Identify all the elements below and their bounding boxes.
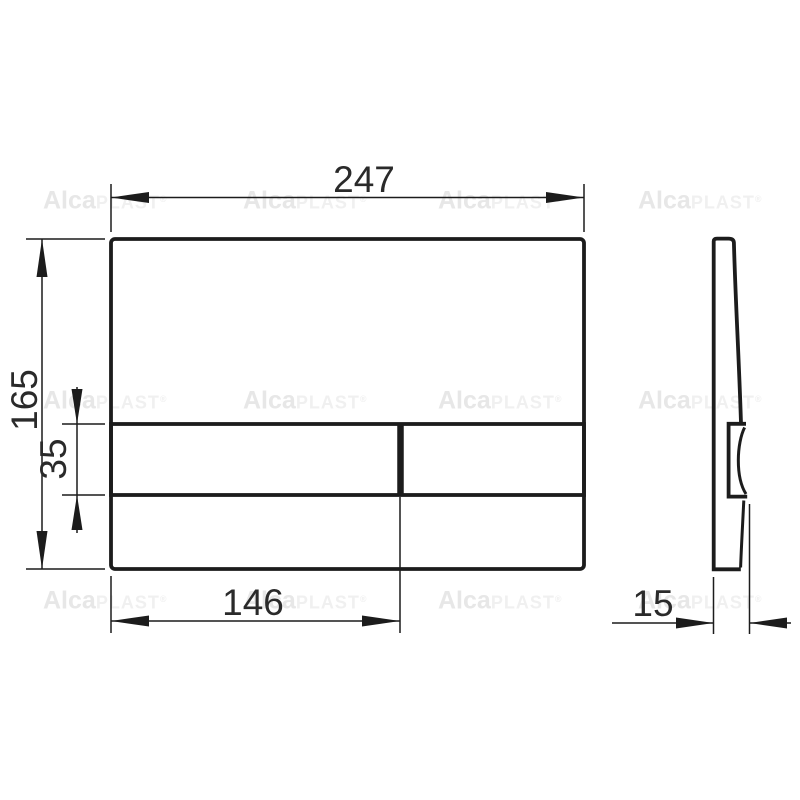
side-button-concave-face (738, 428, 746, 495)
plate-outline (111, 239, 584, 569)
dim-plate-width-label: 247 (333, 159, 395, 200)
dim-thickness-label: 15 (632, 583, 673, 624)
button-band (111, 424, 584, 495)
dim-button-width-label: 146 (222, 582, 284, 623)
arrowhead-up-icon (37, 239, 48, 277)
arrowhead-down-icon (72, 389, 83, 424)
dim-button-height-label: 35 (33, 438, 74, 479)
side-profile-outline (714, 239, 741, 570)
dim-button-width: 146 (111, 576, 400, 633)
dim-plate-width: 247 (111, 159, 584, 232)
arrowhead-left-icon (750, 618, 788, 629)
arrowhead-down-icon (37, 531, 48, 569)
arrowhead-left-icon (111, 192, 149, 203)
technical-drawing: 247 165 35 146 (0, 0, 800, 800)
arrowhead-right-icon (362, 616, 400, 627)
arrowhead-up-icon (72, 495, 83, 530)
dim-thickness: 15 (612, 504, 791, 634)
side-lower-front-edge (741, 501, 744, 568)
dim-plate-height-label: 165 (4, 369, 45, 431)
arrowhead-right-icon (676, 618, 714, 629)
drawing-canvas: AlcaPLAST® AlcaPLAST® AlcaPLAST® AlcaPLA… (0, 0, 800, 800)
dim-plate-height: 165 (4, 239, 105, 569)
front-view (111, 239, 584, 633)
side-view (714, 239, 748, 570)
arrowhead-right-icon (546, 192, 584, 203)
arrowhead-left-icon (111, 616, 149, 627)
